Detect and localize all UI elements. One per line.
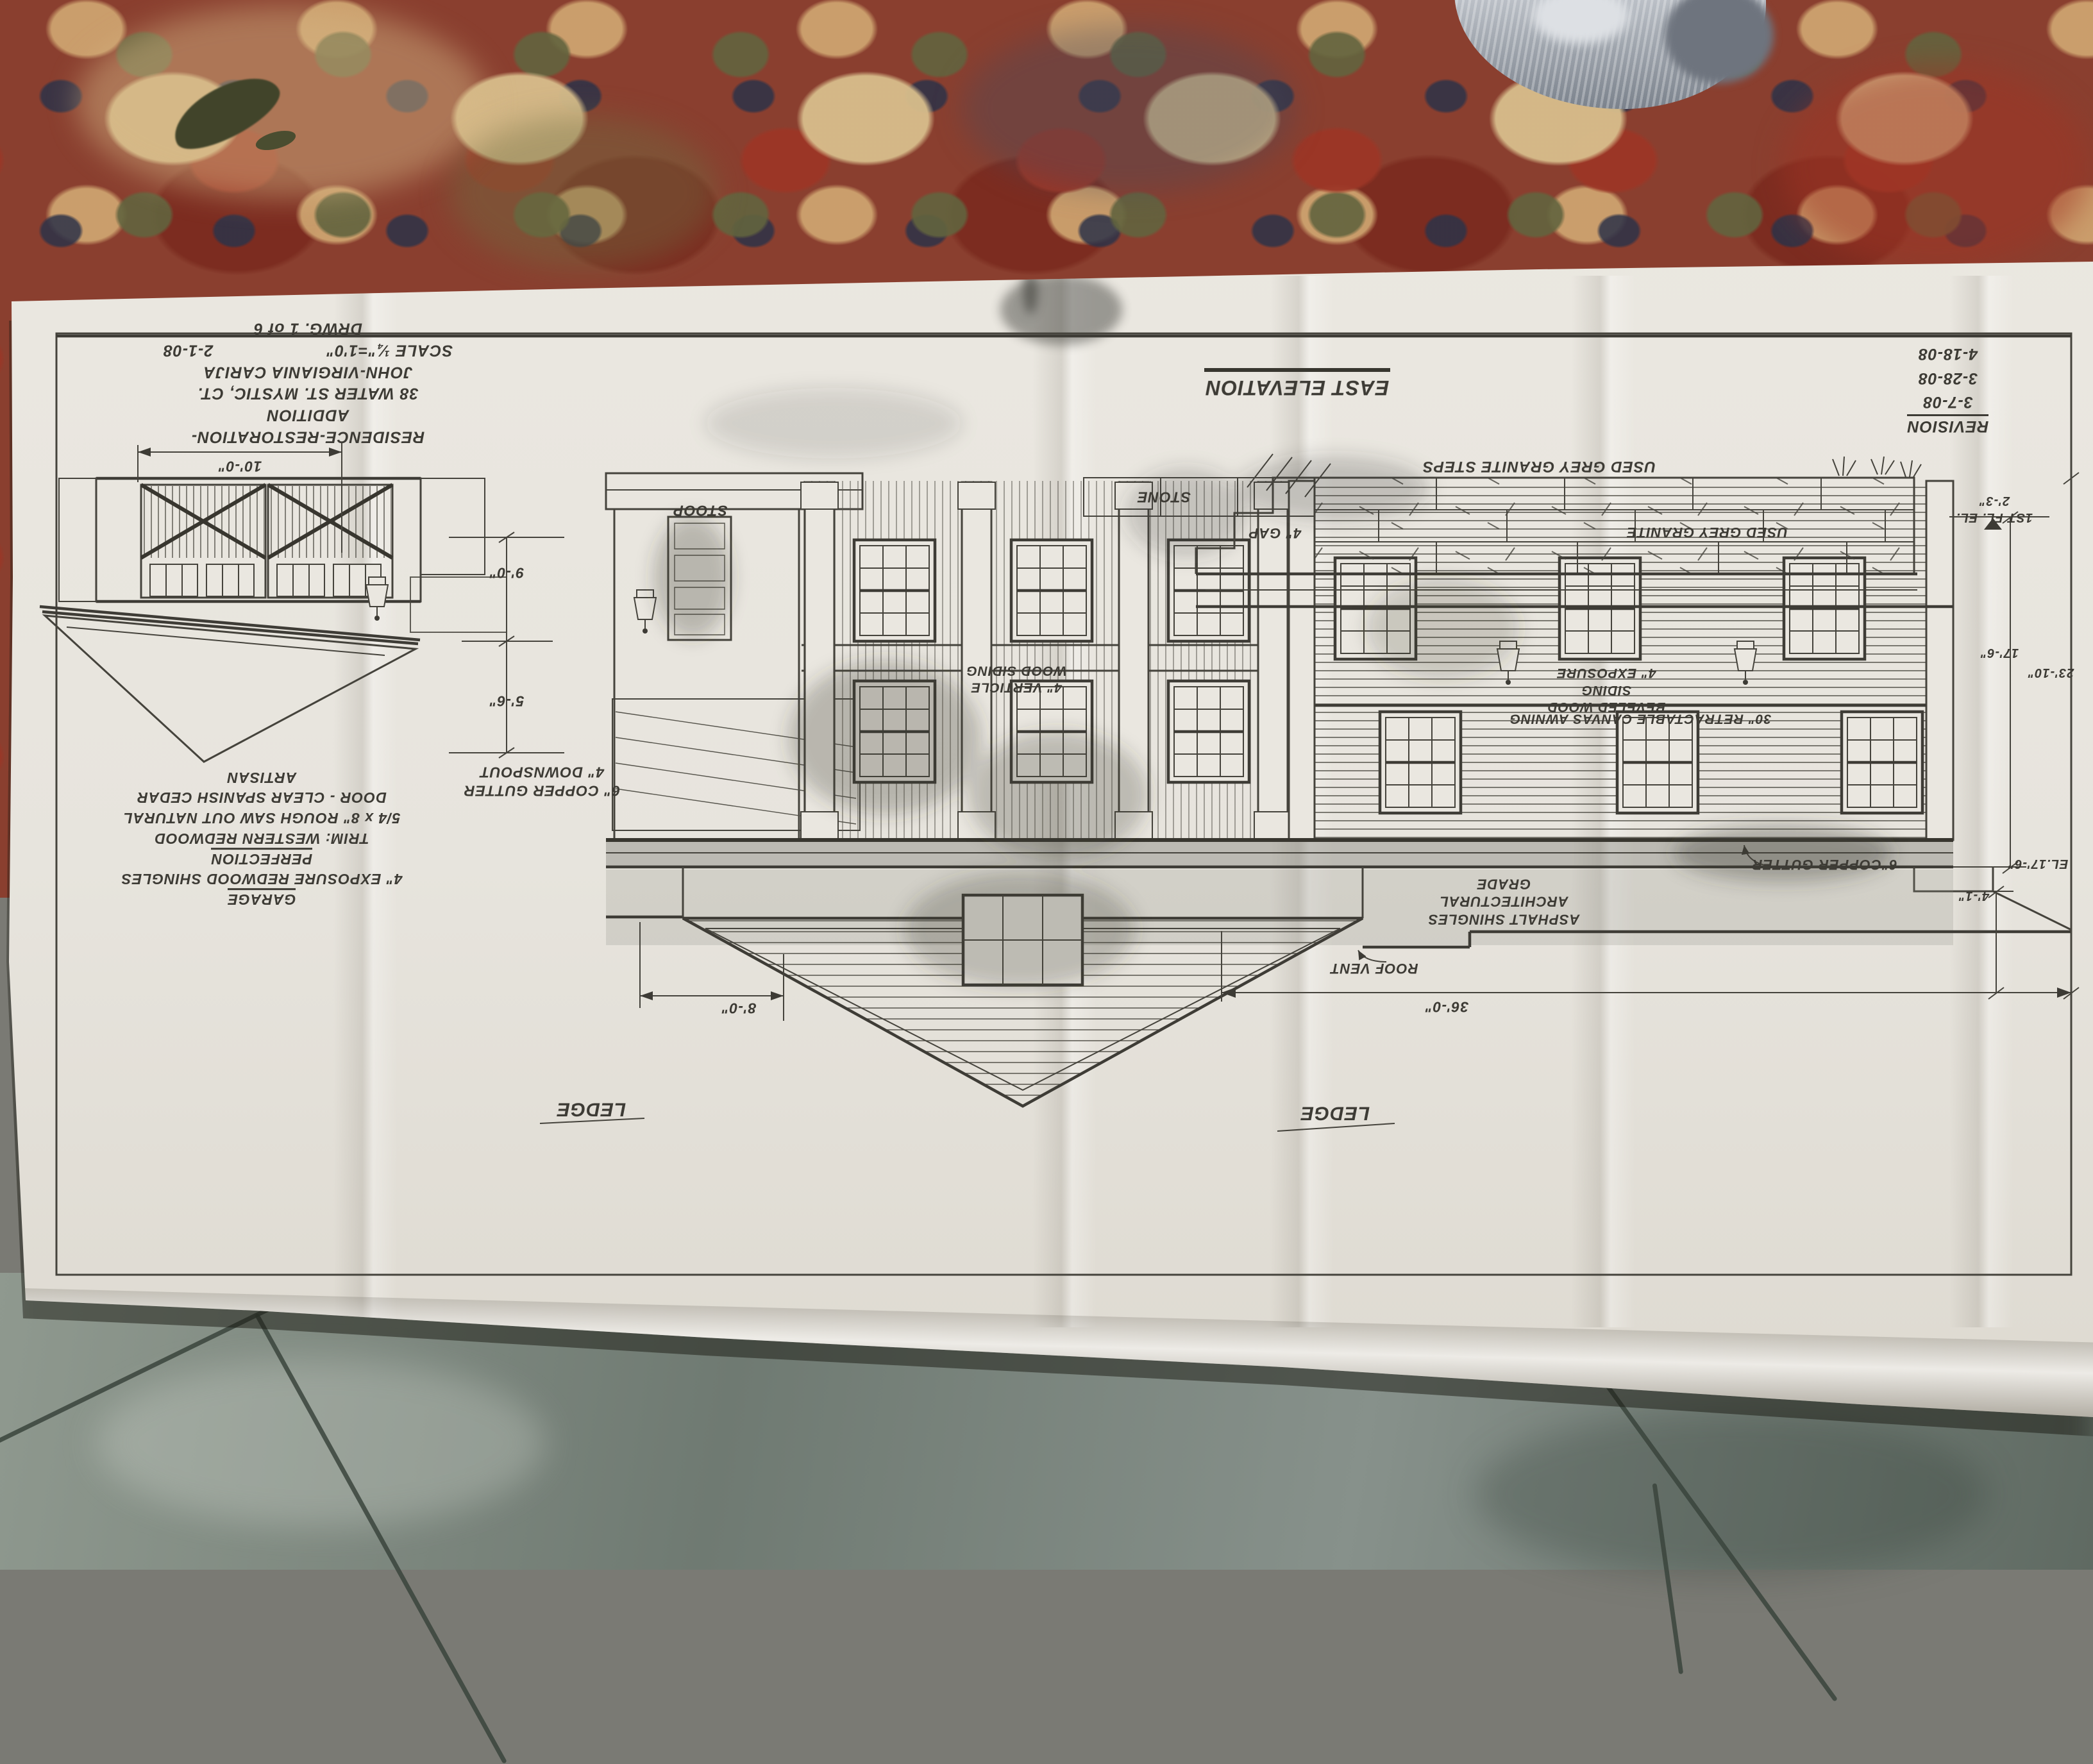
label-line: 4" VERTICLE	[946, 678, 1087, 695]
title-scale: SCALE ¼"=1'0"	[326, 339, 453, 361]
label-line: 4" DOWNSPOUT	[449, 763, 635, 782]
dim-gable-width: 8'-0"	[721, 999, 757, 1016]
label-awning: 30" RETRACTABLE CANVAS AWNING	[1509, 710, 1771, 727]
dim-eave-el: EL.17'-6"	[2008, 855, 2068, 871]
label-stoop: STOOP	[673, 501, 727, 519]
dim-right-overall: 23'-10"	[2028, 664, 2074, 680]
label-granite-wall: USED GREY GRANITE	[1626, 524, 1787, 541]
label-east-elevation: EAST ELEVATION	[1206, 375, 1390, 399]
revision-date: 3-28-08	[1879, 366, 2017, 391]
label-granite-steps: USED GREY GRANITE STEPS	[1422, 457, 1656, 475]
dim-house-width: 36'-0"	[1425, 998, 1468, 1015]
garage-note: ARTISAN	[95, 767, 428, 787]
label-stone: STONE	[1137, 488, 1191, 505]
title-block: RESIDENCE-RESTORATION-ADDITION 38 WATER …	[154, 317, 462, 448]
revision-date: 4-18-08	[1879, 342, 2017, 366]
garage-note: DOOR - CLEAR SPANISH CEDAR	[95, 787, 428, 808]
revision-title: REVISION	[1879, 414, 2017, 439]
garage-notes: GARAGE 4" EXPOSURE REDWOOD SHINGLES PERF…	[95, 767, 428, 909]
label-line: 6" COPPER GUTTER	[449, 782, 635, 800]
label-vertical-siding: 4" VERTICLE WOOD SIDING	[946, 662, 1087, 696]
garage-title: GARAGE	[95, 889, 428, 909]
label-gutter-left: 6" COPPER GUTTER 4" DOWNSPOUT	[449, 763, 635, 800]
label-line: ARCHITECTURAL GRADE	[1420, 875, 1587, 911]
label-line: 1ST FL. EL.	[1943, 509, 2046, 526]
garage-note: TRIM: WESTERN REDWOOD	[95, 828, 428, 848]
label-roof-vent: ROOF VENT	[1330, 960, 1418, 977]
tile-shade	[96, 1359, 545, 1526]
title-address: 38 WATER ST. MYSTIC, CT.	[154, 382, 462, 404]
title-project: RESIDENCE-RESTORATION-ADDITION	[154, 404, 462, 448]
title-date: 2-1-08	[163, 339, 213, 361]
dim-garage-width: 10'-0"	[218, 457, 262, 475]
dim-eave-offset: 4'-1"	[1958, 887, 1989, 903]
label-line: 4" EXPOSURE	[1526, 664, 1686, 681]
carpet-motif	[962, 26, 1295, 192]
label-beveled-siding: BEVELED WOOD SIDING 4" EXPOSURE	[1526, 664, 1686, 715]
photo-of-blueprint: { "drawing": { "east_elevation": "EAST E…	[0, 0, 2093, 1570]
revision-block: REVISION 3-7-08 3-28-08 4-18-08	[1879, 342, 2017, 438]
dim-right-mid: 17'-6"	[1980, 644, 2019, 660]
revision-date: 3-7-08	[1879, 390, 2017, 414]
label-ledge-right: LEDGE	[1300, 1102, 1370, 1124]
garage-note: 5/4 x 8" ROUGH SAW OUT NATURAL	[95, 807, 428, 828]
dim-left-upper: 9'-0"	[489, 564, 525, 581]
garage-note: 4" EXPOSURE REDWOOD SHINGLES	[95, 869, 428, 889]
label-gap: 4" GAP	[1248, 525, 1301, 541]
title-sheet: DRWG. 1 of 6	[154, 317, 462, 339]
carpet-motif	[77, 6, 487, 199]
label-gutter-right: 6"COPPER GUTTER	[1751, 856, 1897, 873]
label-line: WOOD SIDING	[946, 662, 1087, 678]
carpet-motif	[449, 115, 718, 269]
dim-first-floor: 1ST FL. EL. 2'-3"	[1943, 492, 2046, 526]
dim-left-lower: 5'-6"	[489, 692, 525, 709]
label-line: ASPHALT SHINGLES	[1420, 911, 1587, 928]
label-asphalt: ASPHALT SHINGLES ARCHITECTURAL GRADE	[1420, 875, 1587, 928]
title-client: JOHN-VIRGIANIA CARIJA	[154, 361, 462, 383]
label-line: 2'-3"	[1943, 492, 2046, 509]
carpet-motif	[1783, 64, 2090, 269]
label-ledge-left: LEDGE	[557, 1098, 626, 1120]
garage-note: PERFECTION	[95, 848, 428, 869]
